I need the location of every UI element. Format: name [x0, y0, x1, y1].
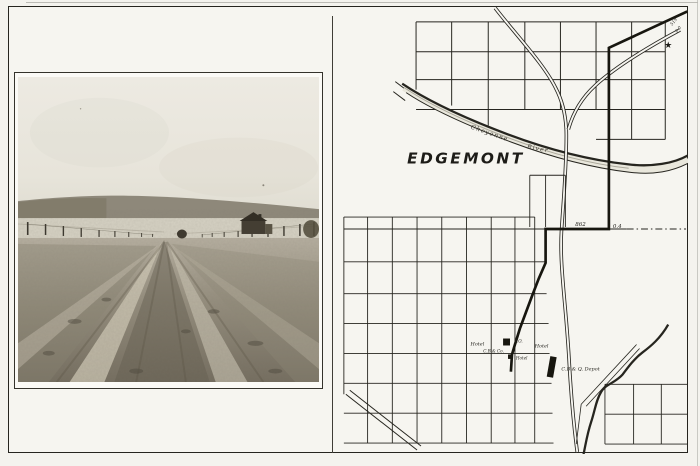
photo-tree-right: [303, 220, 319, 238]
hotel-south-label: Hotel: [515, 355, 528, 360]
photo-bush: [177, 230, 187, 239]
post-office-label: P.O.: [514, 338, 523, 343]
street-grid-south: [344, 175, 566, 443]
corner-mileage-bottom: 0.0: [675, 25, 683, 34]
road-photograph-art: [15, 73, 322, 388]
street-grid-southeast: [605, 384, 688, 444]
route-star-icon: ★: [664, 41, 672, 51]
road-photograph: [14, 72, 323, 389]
hotel-south-building: [508, 354, 512, 358]
mileage-jog-total: 862: [575, 222, 586, 228]
auto-route-line: [511, 12, 686, 370]
road-southeast: [576, 344, 639, 444]
town-name-label: EDGEMONT: [407, 149, 524, 167]
hotel-east-label: Hotel: [534, 343, 549, 349]
edgemont-town-map: ★ 519 0.0 862 0.4 EDGEMONT Cheyenne Rive…: [332, 6, 688, 454]
depot-building: [547, 356, 557, 378]
hotel-west-label: Hotel: [470, 341, 485, 347]
scan-edge-artifact-top: [26, 2, 698, 3]
photo-speck: [262, 184, 264, 186]
mileage-jog-interval: 0.4: [613, 224, 622, 230]
post-office-building: [503, 339, 510, 346]
scan-edge-artifact-right: [697, 0, 698, 466]
scanned-book-plate: ★ 519 0.0 862 0.4 EDGEMONT Cheyenne Rive…: [0, 0, 700, 466]
creek-line: [583, 325, 668, 454]
store-label: C.B.& Co.: [483, 348, 504, 353]
river-name-second: River: [525, 143, 549, 154]
road-southwest: [346, 390, 421, 450]
depot-label: C.B.& Q. Depot: [561, 366, 599, 372]
